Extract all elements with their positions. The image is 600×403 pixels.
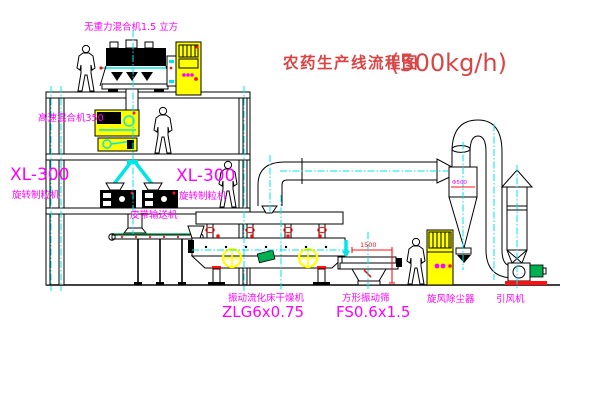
diagram-canvas: 无重力混合机1.5 立方 高速混合机350 XL-300 旋转制粒机 XL-30… [0,0,600,403]
granulator-left [100,183,136,208]
fluid-bed-dryer [188,212,345,285]
label-gravity-mixer: 无重力混合机1.5 立方 [84,21,178,33]
gravity-mixer [99,40,176,112]
granulator-right [142,183,178,208]
label-cyclone-dia: Φ500 [452,180,467,186]
person-figure-1 [77,45,95,91]
dryer-legs [208,266,330,285]
label-cyclone: 旋风除尘器 [427,293,475,305]
diagram-title-capacity: (500kg/h) [390,49,507,77]
dryer-springs [206,224,326,238]
label-high-speed-mixer: 高速混合机350 [38,112,104,124]
label-screen-model: FS0.6x1.5 [336,303,410,321]
label-granulator-left-name: 旋转制粒机 [12,189,60,201]
vibration-motor-left [223,249,241,267]
exhaust-duct [258,158,452,213]
label-granulator-left-model: XL-300 [10,165,69,185]
label-granulator-right-model: XL-300 [176,166,235,186]
slab-top [46,92,250,98]
vibration-motor-right [299,249,317,267]
person-figure-4 [407,238,425,284]
slab-mid [46,154,250,160]
label-dimension-1500: 1500 [360,241,377,249]
label-granulator-right-name: 旋转制粒机 [179,190,227,202]
label-belt-conveyor: 皮带输送机 [130,209,178,221]
mixer-discharge-pipe [126,89,138,112]
cad-flow-diagram: 无重力混合机1.5 立方 高速混合机350 XL-300 旋转制粒机 XL-30… [0,0,600,403]
person-figure-2 [154,107,172,153]
label-fan: 引风机 [496,293,525,305]
induced-draft-fan [505,263,547,285]
control-cabinet-1 [176,42,201,95]
label-dryer-model: ZLG6x0.75 [222,303,304,321]
control-cabinet-2 [427,230,453,285]
